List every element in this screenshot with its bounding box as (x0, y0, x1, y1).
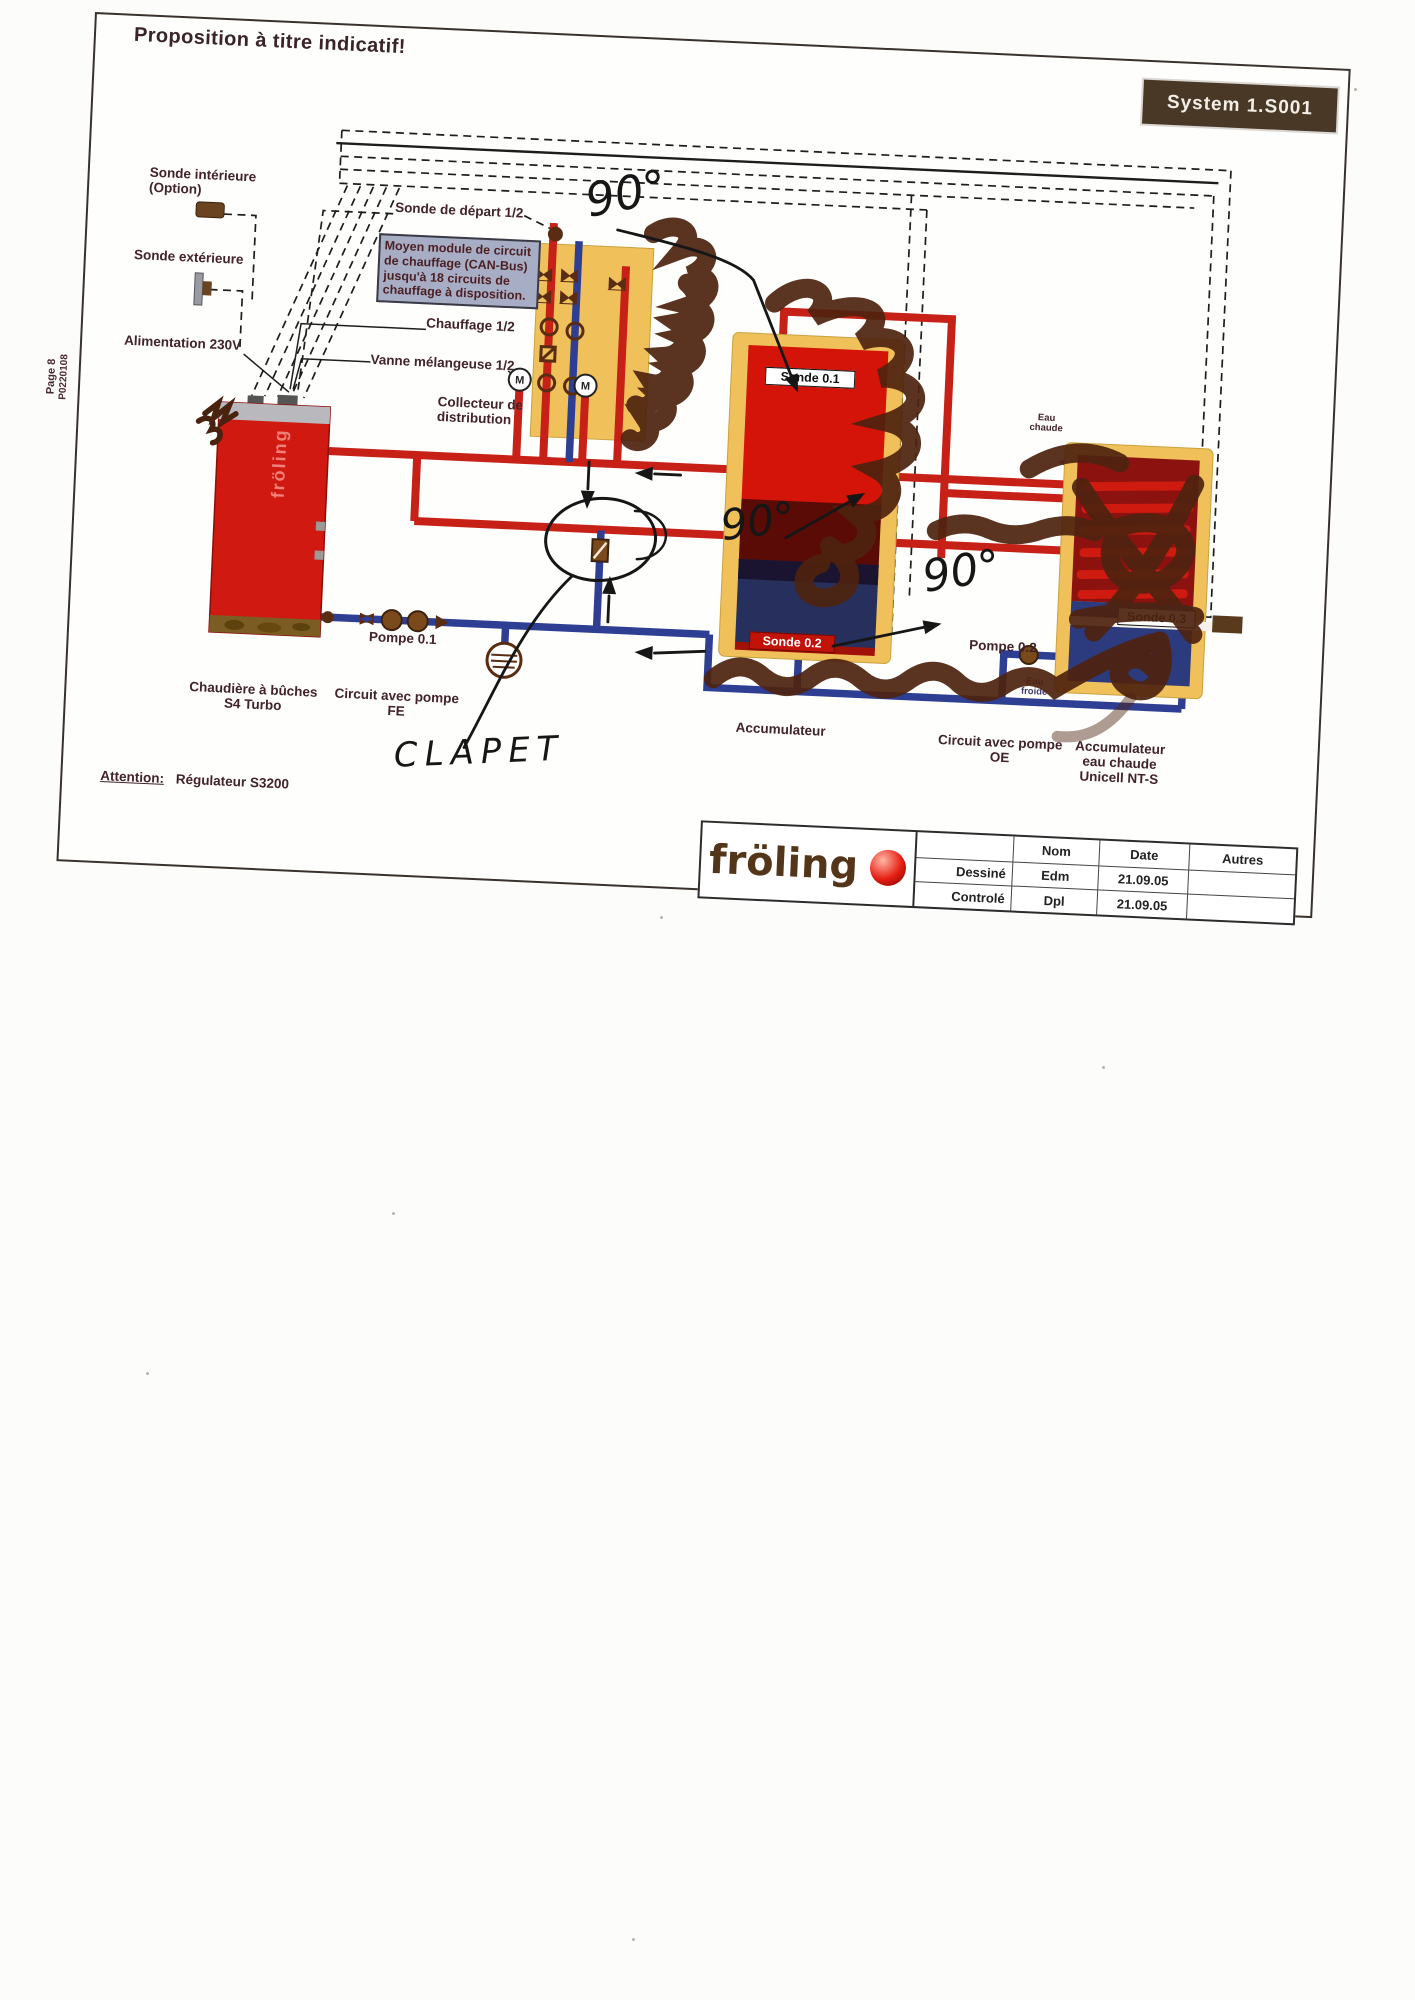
scanned-schematic-page: M M Proposition à titre indicatif! Syste… (56, 12, 1350, 918)
tb-row2-date: 21.09.05 (1096, 890, 1187, 919)
page-title: Proposition à titre indicatif! (133, 24, 406, 59)
attention-word: Attention: (100, 768, 164, 786)
scan-speck (1102, 1066, 1105, 1069)
label-sonde-depart: Sonde de départ 1/2 (388, 200, 524, 221)
svg-text:M: M (581, 380, 591, 392)
tb-row2-autres (1186, 894, 1294, 923)
scanned-document-canvas: { "page": { "title": "Proposition à titr… (0, 0, 1415, 2000)
label-sonde-interieure: Sonde intérieure (Option) (149, 165, 280, 201)
handwritten-angle-1: 90° (581, 159, 672, 228)
tb-row2-nom: Dpl (1010, 886, 1097, 915)
regulateur-text: Régulateur S3200 (175, 771, 289, 791)
scan-speck (632, 1938, 635, 1941)
label-circuit-oe: Circuit avec pompe OE (932, 732, 1068, 768)
page-margin-number: Page 8 P0220108 (43, 321, 72, 432)
label-vanne-melangeuse: Vanne mélangeuse 1/2 (370, 352, 516, 374)
label-attention-regulateur: Attention: Régulateur S3200 (100, 768, 289, 792)
label-sonde-exterieure: Sonde extérieure (134, 247, 255, 268)
froeling-logo: fröling (700, 822, 918, 906)
label-pompe-02: Pompe 0.2 (969, 637, 1050, 656)
tb-row2-label: Controlé (914, 881, 1011, 910)
label-circuit-fe: Circuit avec pompe FE (328, 685, 464, 721)
scan-speck (660, 916, 663, 919)
label-sonde-03: Sonde 0.3 (1117, 607, 1196, 629)
label-sonde-01: Sonde 0.1 (765, 367, 856, 389)
froeling-logo-text: fröling (708, 837, 859, 890)
scan-speck (146, 1372, 149, 1375)
label-module-can-bus: Moyen module de circuit de chauffage (CA… (376, 233, 541, 309)
title-block-table: Nom Date Autres Dessiné Edm 21.09.05 Con… (914, 832, 1296, 923)
handwritten-angle-3: 90° (919, 540, 1004, 603)
label-eau-chaude: Eau chaude (1023, 413, 1070, 435)
label-alimentation: Alimentation 230V (124, 333, 250, 354)
system-label-badge: System 1.S001 (1142, 80, 1338, 133)
svg-text:M: M (515, 374, 525, 386)
boiler-brand-text: fröling (266, 388, 294, 539)
scan-speck (1354, 88, 1357, 91)
label-eau-froide: Eau froide (1011, 676, 1058, 698)
froeling-logo-ball-icon (869, 849, 907, 887)
label-chauffage: Chauffage 1/2 (426, 315, 527, 335)
handwritten-angle-2: 90° (718, 492, 798, 550)
label-pompe-01: Pompe 0.1 (369, 629, 450, 648)
label-accumulateur: Accumulateur (718, 719, 844, 740)
handwritten-clapet: CLAPET (393, 729, 565, 776)
label-accumulateur-eau-chaude: Accumulateur eau chaude Unicell NT-S (1061, 738, 1178, 788)
title-block: fröling Nom Date Autres Dessiné Edm 21.0… (697, 820, 1298, 925)
scan-speck (392, 1212, 395, 1215)
label-chaudiere: Chaudière à bûches S4 Turbo (177, 678, 328, 715)
label-sonde-02: Sonde 0.2 (749, 631, 836, 653)
label-collecteur: Collecteur de distribution (437, 394, 548, 429)
